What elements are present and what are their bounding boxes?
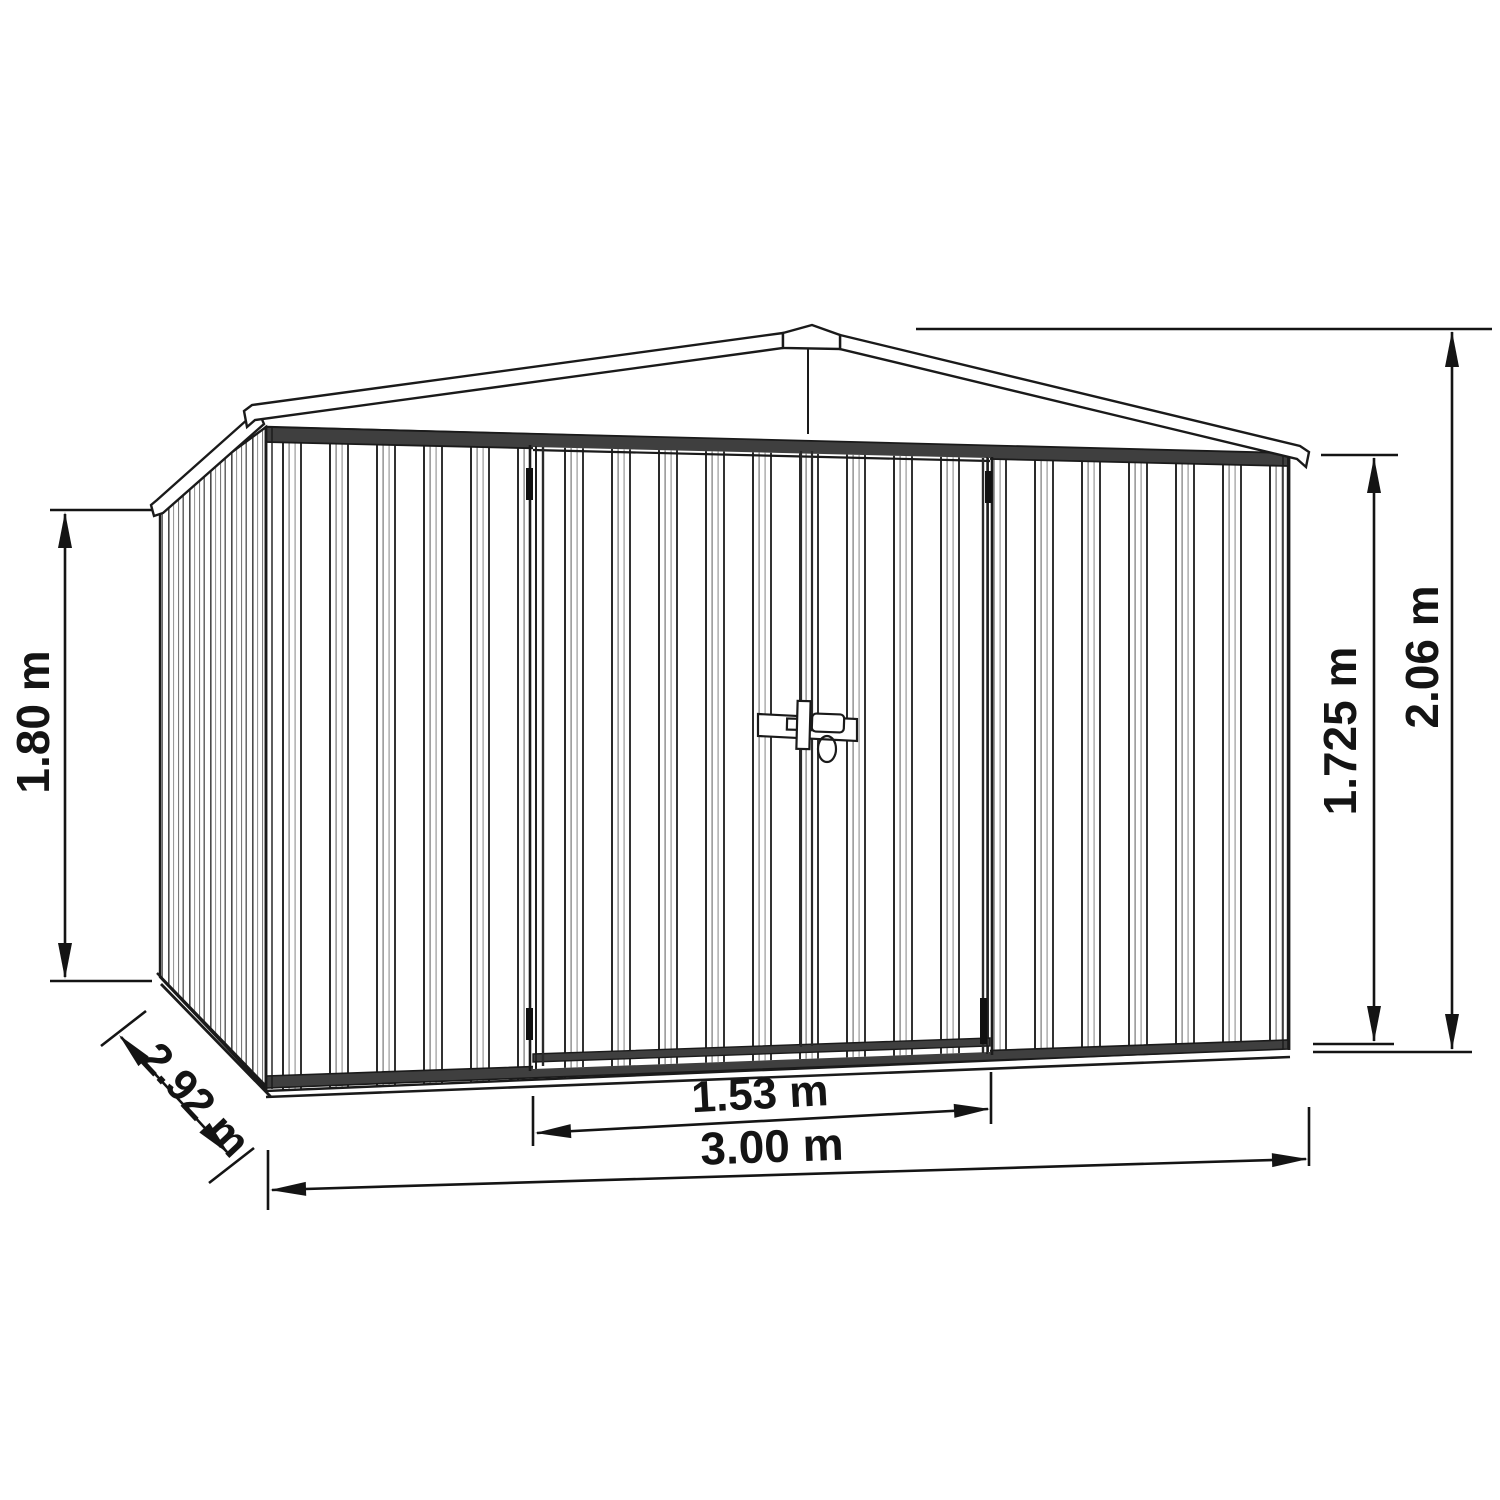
dimension-label-door-width: 1.53 m: [690, 1066, 829, 1122]
hinge-right-top: [985, 471, 992, 503]
roof-left-fascia: [244, 333, 783, 427]
shed: [151, 325, 1309, 1097]
hinge-left-bottom: [526, 1008, 533, 1040]
side-wall: [157, 427, 271, 1097]
double-doors: [526, 445, 992, 1071]
shed-dimension-drawing: 1.80 m 2.92 m 1.53 m 3.00 m: [0, 0, 1500, 1500]
dimension-label-total-width: 3.00 m: [699, 1118, 844, 1175]
hinge-left-top: [526, 468, 533, 500]
dimension-front-wall-height: 1.725 m: [1313, 455, 1398, 1044]
drawing-canvas: 1.80 m 2.92 m 1.53 m 3.00 m: [0, 0, 1500, 1500]
dimension-total-width: 3.00 m: [268, 1107, 1309, 1210]
dimension-label-side-wall-height: 1.80 m: [7, 650, 59, 793]
roof-apex-cap: [783, 325, 840, 349]
dimension-label-front-wall-height: 1.725 m: [1314, 647, 1366, 816]
dimension-label-ridge-height: 2.06 m: [1396, 585, 1448, 728]
dimension-side-wall-height: 1.80 m: [7, 510, 152, 981]
hinge-right-bottom: [980, 998, 987, 1044]
